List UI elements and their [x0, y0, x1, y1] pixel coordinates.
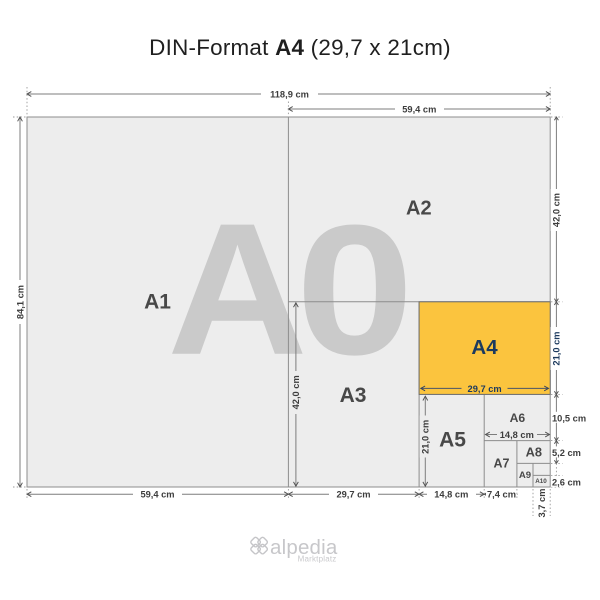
svg-text:59,4 cm: 59,4 cm — [140, 490, 174, 500]
svg-text:A1: A1 — [144, 291, 171, 314]
svg-text:A8: A8 — [526, 445, 542, 460]
svg-text:A5: A5 — [439, 429, 466, 452]
svg-text:A3: A3 — [340, 384, 367, 407]
svg-text:29,7 cm: 29,7 cm — [336, 490, 370, 500]
svg-text:118,9 cm: 118,9 cm — [270, 89, 309, 99]
svg-text:59,4 cm: 59,4 cm — [402, 104, 436, 114]
svg-text:A10: A10 — [535, 478, 547, 485]
svg-text:21,0 cm: 21,0 cm — [421, 420, 431, 454]
svg-text:A2: A2 — [406, 198, 432, 220]
svg-text:10,5 cm: 10,5 cm — [552, 413, 586, 423]
svg-text:21,0 cm: 21,0 cm — [552, 331, 562, 365]
svg-text:7,4 cm: 7,4 cm — [487, 490, 516, 500]
svg-text:3,7 cm: 3,7 cm — [537, 489, 547, 518]
svg-text:A9: A9 — [519, 470, 531, 481]
svg-text:DIN-Format A4 (29,7 x 21cm): DIN-Format A4 (29,7 x 21cm) — [149, 35, 451, 60]
svg-text:Marktplatz: Marktplatz — [298, 555, 337, 564]
svg-text:A6: A6 — [510, 411, 526, 425]
svg-text:42,0 cm: 42,0 cm — [291, 375, 301, 409]
svg-text:5,2 cm: 5,2 cm — [552, 448, 581, 458]
svg-text:A7: A7 — [494, 457, 510, 471]
svg-text:29,7 cm: 29,7 cm — [468, 384, 502, 394]
svg-text:14,8 cm: 14,8 cm — [500, 430, 534, 440]
svg-text:14,8 cm: 14,8 cm — [434, 490, 468, 500]
svg-text:0: 0 — [296, 188, 414, 394]
svg-text:84,1 cm: 84,1 cm — [15, 285, 25, 319]
svg-text:42,0 cm: 42,0 cm — [552, 193, 562, 227]
svg-text:A4: A4 — [471, 336, 498, 359]
svg-text:A: A — [167, 184, 307, 394]
svg-text:2,6 cm: 2,6 cm — [552, 477, 581, 487]
